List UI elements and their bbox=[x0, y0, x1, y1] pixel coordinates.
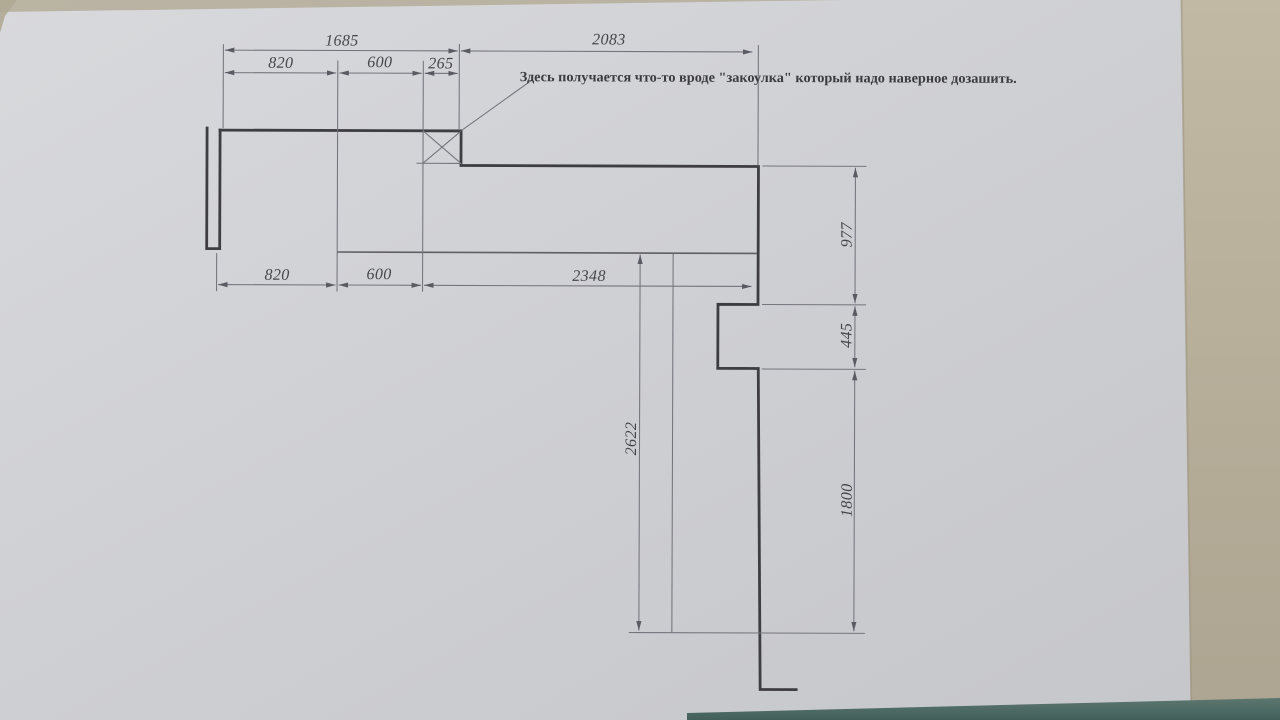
dim-label-bottom-600: 600 bbox=[366, 266, 391, 283]
dim-label-1685: 1685 bbox=[325, 32, 359, 49]
dim-label-445: 445 bbox=[838, 323, 855, 348]
dim-label-1800: 1800 bbox=[839, 483, 856, 517]
dim-label-top-820: 820 bbox=[268, 55, 293, 72]
dim-label-2083: 2083 bbox=[592, 31, 626, 48]
photo-of-drawing: 1685 2083 820 600 265 820 600 2348 977 4… bbox=[0, 0, 1280, 720]
dim-label-2622: 2622 bbox=[623, 422, 640, 456]
dim-label-265: 265 bbox=[428, 55, 453, 72]
blueprint-photo: 1685 2083 820 600 265 820 600 2348 977 4… bbox=[0, 0, 1280, 720]
dim-label-977: 977 bbox=[839, 222, 856, 248]
annotation-note: Здесь получается что-то вроде "закоулка"… bbox=[520, 70, 1017, 87]
desk-background bbox=[1181, 0, 1280, 720]
dim-label-top-600: 600 bbox=[367, 54, 392, 71]
dim-label-bottom-820: 820 bbox=[264, 267, 289, 284]
dim-label-2348: 2348 bbox=[572, 268, 606, 285]
